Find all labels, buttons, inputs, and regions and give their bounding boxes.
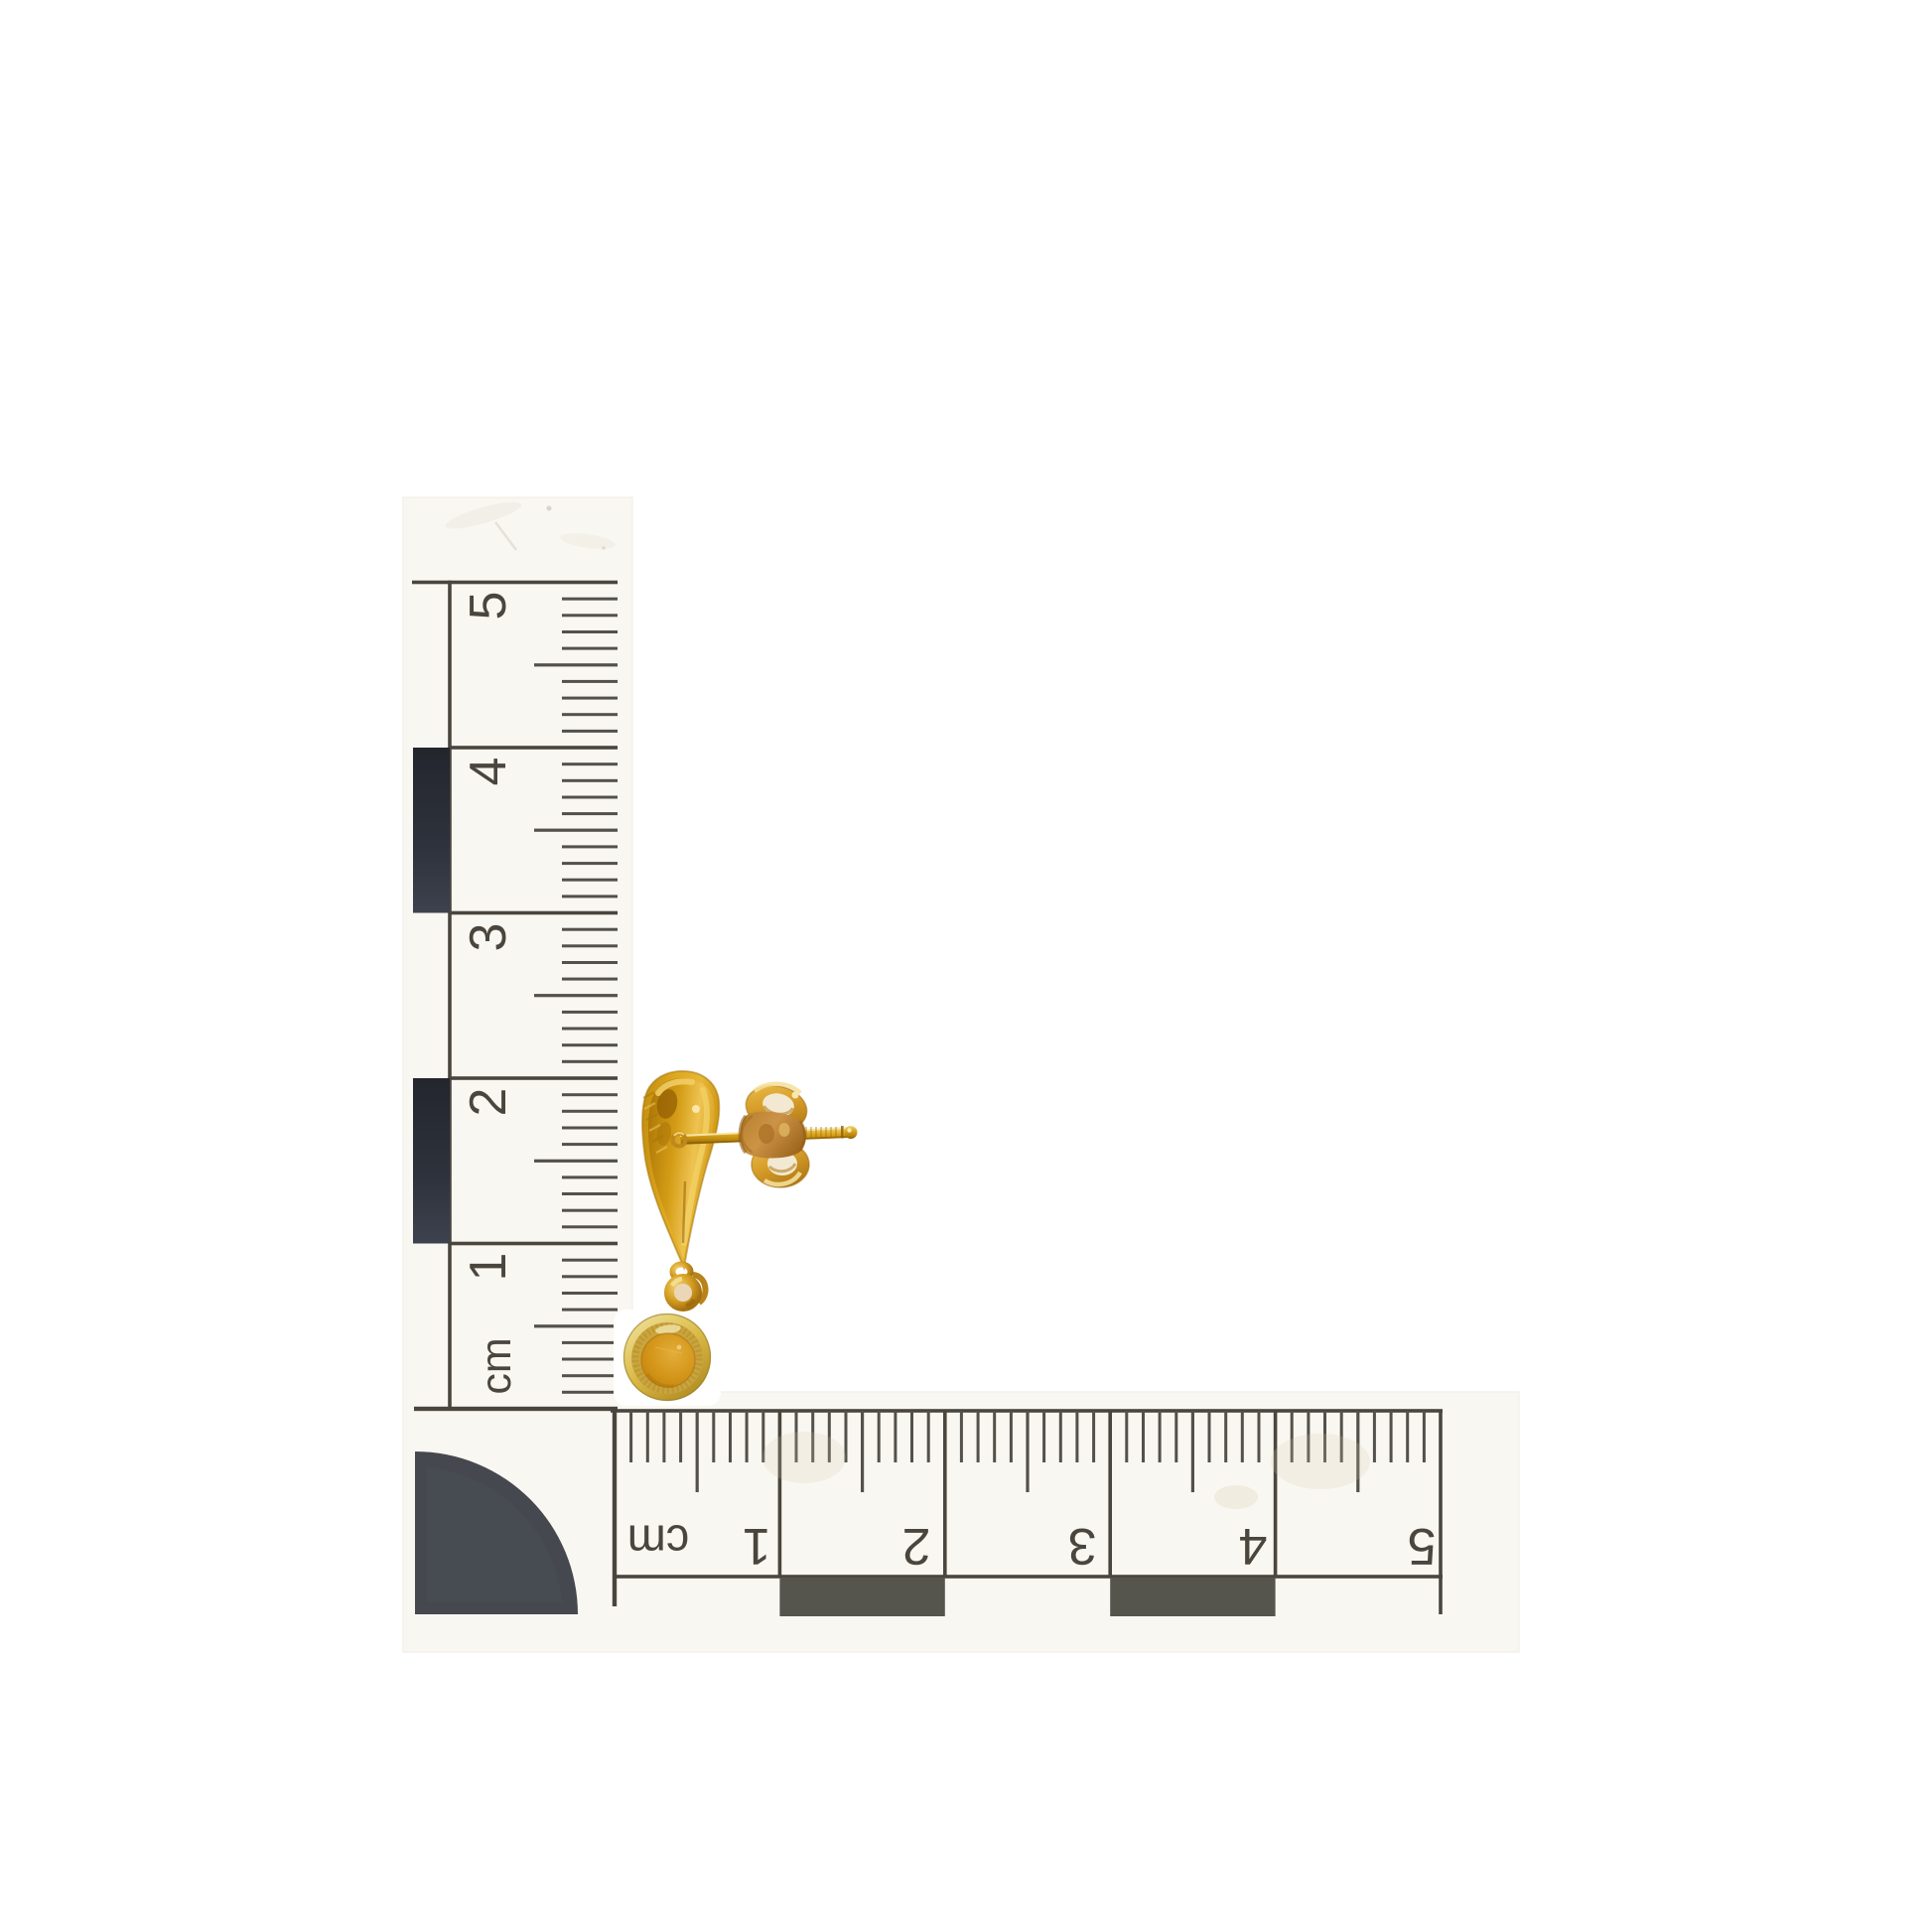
svg-text:5: 5	[460, 592, 517, 621]
svg-text:4: 4	[460, 758, 517, 786]
svg-text:2: 2	[460, 1088, 517, 1117]
svg-text:3: 3	[1068, 1517, 1097, 1575]
svg-text:1: 1	[460, 1253, 517, 1282]
svg-text:4: 4	[1239, 1517, 1268, 1575]
svg-text:5: 5	[1408, 1517, 1437, 1575]
svg-text:cm: cm	[627, 1516, 690, 1569]
svg-text:1: 1	[743, 1517, 771, 1575]
svg-text:3: 3	[460, 923, 517, 952]
svg-text:cm: cm	[473, 1337, 520, 1394]
svg-text:2: 2	[902, 1517, 931, 1575]
